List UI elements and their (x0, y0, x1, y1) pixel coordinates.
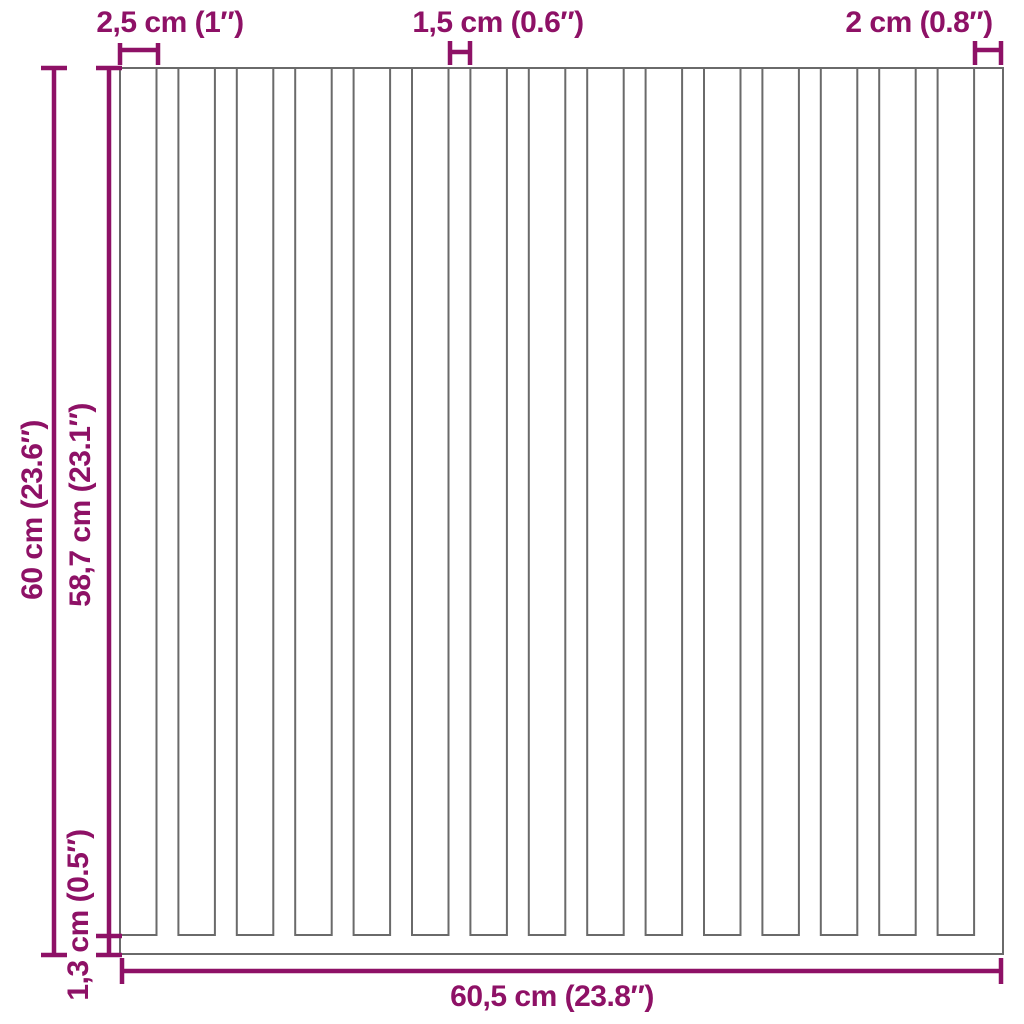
slat (178, 68, 215, 935)
slat (704, 68, 741, 935)
edge-width-label: 2 cm (0.8″) (845, 8, 992, 38)
slat (354, 68, 391, 935)
slat (412, 68, 449, 935)
slat-height-label: 58,7 cm (23.1″) (66, 403, 96, 607)
slat (879, 68, 916, 935)
slat (821, 68, 858, 935)
panel-drawing (0, 0, 1024, 1024)
slat (587, 68, 624, 935)
slat (938, 68, 975, 935)
slat-height-line (96, 68, 122, 955)
slat (470, 68, 507, 935)
slat-width-bracket (118, 43, 160, 65)
slat-width-label: 2,5 cm (1″) (96, 8, 243, 38)
slat-outlines (120, 68, 974, 935)
total-height-label: 60 cm (23.6″) (18, 420, 48, 600)
slat (529, 68, 566, 935)
dimension-diagram: 2,5 cm (1″) 1,5 cm (0.6″) 2 cm (0.8″) 60… (0, 0, 1024, 1024)
slat (762, 68, 799, 935)
gap-width-label: 1,5 cm (0.6″) (412, 8, 583, 38)
slat (646, 68, 683, 935)
rail-height-label: 1,3 cm (0.5″) (64, 829, 94, 1000)
slat (237, 68, 273, 935)
gap-width-bracket (448, 41, 472, 65)
slat (295, 68, 332, 935)
edge-width-bracket (973, 41, 1003, 65)
total-width-label: 60,5 cm (23.8″) (450, 982, 654, 1012)
slat (120, 68, 157, 935)
panel-outline (120, 68, 1003, 954)
dimension-lines (41, 41, 1003, 984)
